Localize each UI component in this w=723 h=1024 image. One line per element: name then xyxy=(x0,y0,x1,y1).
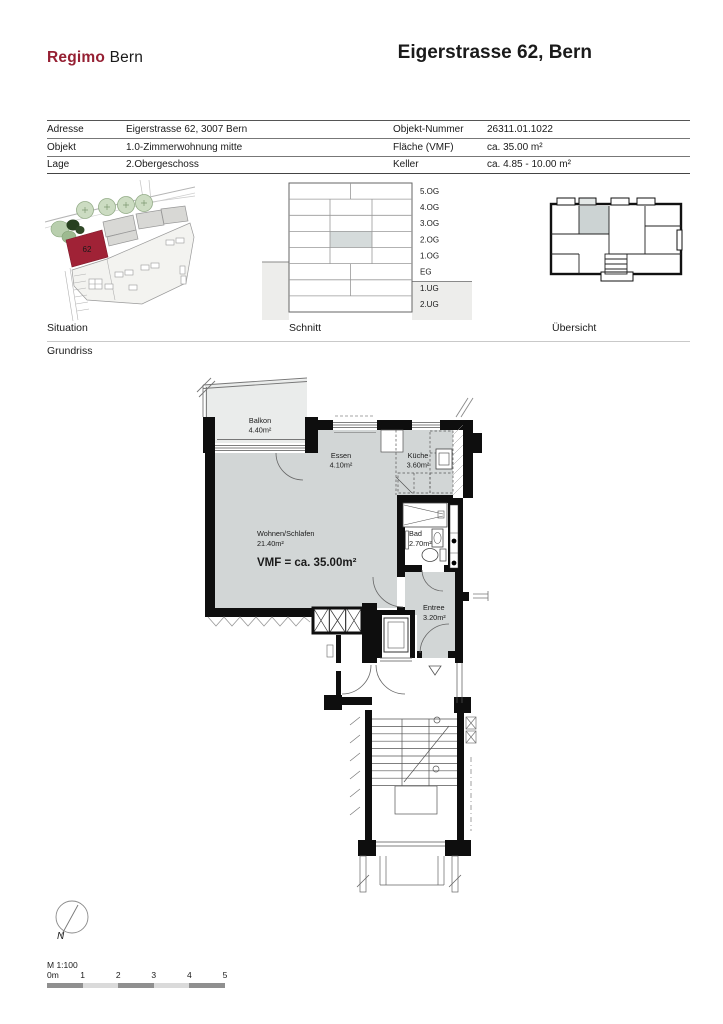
room-area: 3.60m² xyxy=(407,461,430,470)
property-factsheet-page: Regimo Bern Eigerstrasse 62, Bern Adress… xyxy=(0,0,723,1024)
scale-bar xyxy=(47,983,225,988)
row-label: Fläche (VMF) xyxy=(393,142,487,153)
row-value: 26311.01.1022 xyxy=(487,124,690,135)
uebersicht-overview-plan xyxy=(549,196,683,286)
highlighted-floor-cell xyxy=(330,231,372,247)
tick-label: 4 xyxy=(187,970,192,980)
room-area: 2.70m² xyxy=(409,539,432,548)
scale-tick-labels: 0m 1 2 3 4 5 xyxy=(47,970,247,980)
room-area: 4.40m² xyxy=(249,426,272,435)
row-value: ca. 4.85 - 10.00 m² xyxy=(487,159,690,170)
room-area: 21.40m² xyxy=(257,539,284,548)
roof-edge-lines xyxy=(456,398,473,417)
bush-dark xyxy=(76,226,85,234)
room-name: Wohnen/Schlafen xyxy=(257,529,314,538)
row-label: Keller xyxy=(393,159,487,170)
logo-primary: Regimo xyxy=(47,49,105,66)
highlighted-unit xyxy=(579,206,609,234)
shaft-hatched xyxy=(313,608,362,633)
tick-label: 0m xyxy=(47,970,59,980)
svg-text:1.UG: 1.UG xyxy=(420,284,439,293)
room-name: Küche xyxy=(408,451,429,460)
building-number-label: 62 xyxy=(83,245,92,254)
row-value: ca. 35.00 m² xyxy=(487,142,690,153)
tick-label: 5 xyxy=(223,970,228,980)
svg-text:2.UG: 2.UG xyxy=(420,300,439,309)
building-entrance xyxy=(357,856,461,892)
floor-plan: Balkon 4.40m² Essen 4.10m² Küche 3.60m² … xyxy=(190,365,490,905)
room-area: 4.10m² xyxy=(330,461,353,470)
tick-label: 2 xyxy=(116,970,121,980)
uebersicht-label: Übersicht xyxy=(552,322,596,334)
north-label: N xyxy=(57,931,64,942)
svg-text:3.OG: 3.OG xyxy=(420,219,439,228)
room-name: Bad xyxy=(409,529,422,538)
room-name: Entree xyxy=(423,603,445,612)
room-name: Essen xyxy=(331,451,351,460)
situation-site-plan: 62 xyxy=(45,180,195,322)
ground-left xyxy=(262,262,289,320)
svg-text:1.OG: 1.OG xyxy=(420,252,439,261)
room-area: 3.20m² xyxy=(423,613,446,622)
tick-label: 3 xyxy=(151,970,156,980)
insulation-hatch xyxy=(453,425,463,495)
schnitt-section-diagram: 5.OG 4.OG 3.OG 2.OG 1.OG EG 1.UG 2.UG xyxy=(262,178,472,320)
svg-text:4.OG: 4.OG xyxy=(420,203,439,212)
vmf-label: VMF = ca. 35.00m² xyxy=(257,557,357,569)
table-row: Lage 2.Obergeschoss Keller ca. 4.85 - 10… xyxy=(47,156,690,174)
table-row: Adresse Eigerstrasse 62, 3007 Bern Objek… xyxy=(47,121,690,138)
row-value: 1.0-Zimmerwohnung mitte xyxy=(126,142,393,153)
kitchen-sink xyxy=(436,449,452,469)
grundriss-label: Grundriss xyxy=(47,345,93,357)
row-label: Lage xyxy=(47,159,126,170)
property-info-table: Adresse Eigerstrasse 62, 3007 Bern Objek… xyxy=(47,120,690,174)
pipe xyxy=(452,539,457,544)
tick-label: 1 xyxy=(80,970,85,980)
floor-labels: 5.OG 4.OG 3.OG 2.OG 1.OG EG 1.UG 2.UG xyxy=(420,187,439,309)
schnitt-label: Schnitt xyxy=(289,322,321,334)
triangle-marker xyxy=(429,666,441,675)
elevator xyxy=(384,618,408,652)
row-value: Eigerstrasse 62, 3007 Bern xyxy=(126,124,393,135)
room-name: Balkon xyxy=(249,416,271,425)
page-title: Eigerstrasse 62, Bern xyxy=(300,42,592,64)
section-divider xyxy=(47,341,690,342)
row-value: 2.Obergeschoss xyxy=(126,159,393,170)
staircase xyxy=(372,717,457,814)
toilet xyxy=(422,549,438,562)
radiator xyxy=(381,430,403,452)
svg-text:2.OG: 2.OG xyxy=(420,236,439,245)
company-logo: Regimo Bern xyxy=(47,49,143,67)
situation-label: Situation xyxy=(47,322,88,334)
logo-secondary: Bern xyxy=(110,49,144,66)
row-label: Objekt-Nummer xyxy=(393,124,487,135)
svg-text:EG: EG xyxy=(420,268,432,277)
north-arrow xyxy=(48,896,94,942)
row-label: Adresse xyxy=(47,124,126,135)
table-row: Objekt 1.0-Zimmerwohnung mitte Fläche (V… xyxy=(47,138,690,156)
pipe xyxy=(452,561,457,566)
hatch-zigzag xyxy=(208,617,310,626)
pipe-niche xyxy=(450,505,458,568)
row-label: Objekt xyxy=(47,142,126,153)
svg-text:5.OG: 5.OG xyxy=(420,187,439,196)
scale-label: M 1:100 xyxy=(47,960,78,970)
neighbor-wall-stub xyxy=(473,591,488,601)
